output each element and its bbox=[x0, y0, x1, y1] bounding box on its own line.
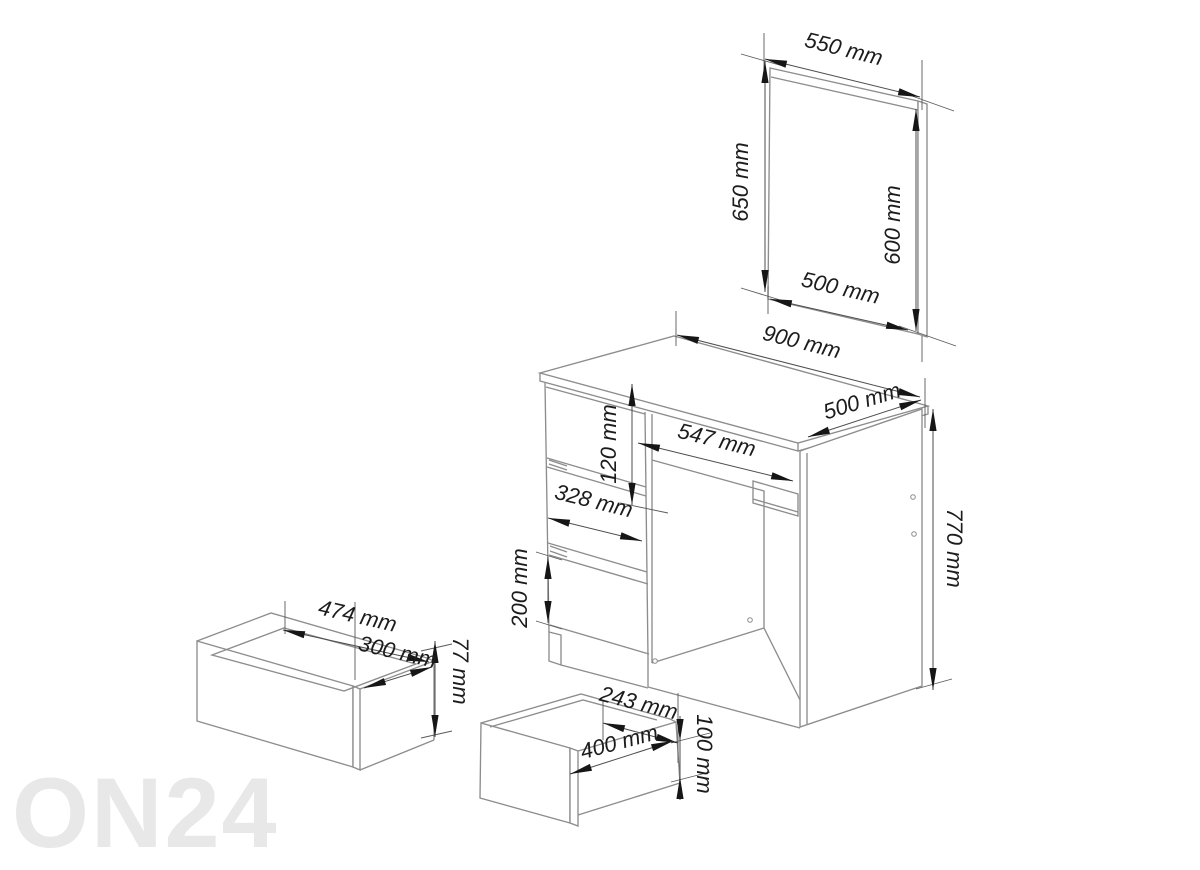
drawer-front-width-label: 328 mm bbox=[552, 479, 635, 522]
mirror-right-height-label: 600 mm bbox=[880, 185, 905, 264]
technical-drawing-page: ON24 bbox=[0, 0, 1200, 859]
bottom-drawer-height-label: 200 mm bbox=[507, 548, 532, 628]
desk-height-label: 770 mm bbox=[942, 508, 967, 587]
mirror-top-width-label: 550 mm bbox=[802, 27, 885, 70]
top-drawer-height-label: 120 mm bbox=[596, 404, 621, 483]
side-drawer-outline bbox=[197, 613, 434, 770]
side-drawer-width-label: 474 mm bbox=[316, 595, 399, 637]
furniture-dimension-drawing: 550 mm 650 mm 600 mm 500 mm 900 mm 500 m… bbox=[0, 0, 1200, 859]
center-drawer-front-width-label: 400 mm bbox=[577, 719, 660, 764]
center-drawer-back-width-label: 243 mm bbox=[596, 681, 680, 725]
center-drawer-height-label: 100 mm bbox=[692, 714, 717, 793]
mirror-left-height-label: 650 mm bbox=[728, 142, 753, 221]
desk-top-width-label: 900 mm bbox=[760, 320, 843, 363]
side-drawer-height-label: 77 mm bbox=[448, 637, 473, 704]
side-drawer-depth-label: 300 mm bbox=[356, 631, 439, 673]
